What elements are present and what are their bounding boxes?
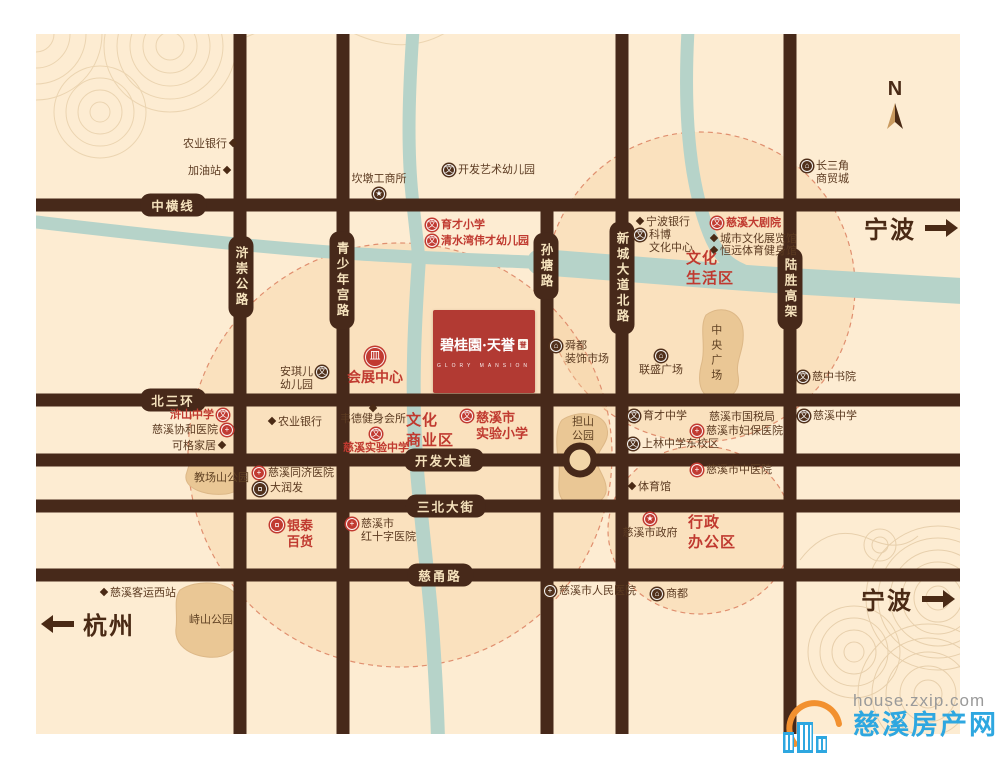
school-icon: 文 [711,217,723,229]
poi-hushan-middle-school: 浒山中学文 [170,409,229,422]
direction-label: 杭州 [83,606,135,641]
poi-label: 体育馆 [638,481,671,494]
district-label-culture-living-zone: 文化 生活区 [686,249,734,290]
hospital-icon: + [691,425,703,437]
compass: N [884,78,906,131]
poi-label: 慈溪同济医院 [268,467,334,480]
star-icon: ★ [644,513,656,525]
poi-changsanjiao-trade-city: ⌂长三角 商贸城 [801,160,849,186]
poi-cixi-experimental-primary-school: 文慈溪市 实验小学 [461,410,528,441]
pin-icon [628,482,636,490]
school-icon: 文 [798,410,810,422]
poi-shangdu-mall: ⌂商都 [651,588,688,601]
pin-icon [223,166,231,174]
poi-anqier-kindergarten: 安琪儿 幼儿园文 [280,366,328,392]
watermark-site-name: 慈溪房产网 [853,711,998,739]
poi-label: 慈溪客运西站 [110,587,176,600]
poi-cizhong-academy: 文慈中书院 [797,371,856,384]
poi-tcm-hospital: +慈溪市中医院 [691,464,772,477]
poi-qingshuiwan-kindergarten: 文清水湾伟才幼儿园 [426,235,529,248]
poi-cixi-middle-school: 文慈溪中学 [798,410,857,423]
poi-yintai-department-store: ¤银泰 百货 [270,518,313,549]
poi-shundu-decor-market: ⌂舜都 装饰市场 [550,340,609,366]
poi-yucai-primary-school: 文育才小学 [426,219,485,232]
school-icon: 文 [628,410,640,422]
road-label-huchong-highway: 浒崇公路 [229,236,254,318]
school-icon: 文 [370,428,382,440]
building-icon: ⌂ [655,350,667,362]
poi-tongji-hospital: +慈溪同济医院 [253,467,334,480]
pin-icon [100,588,108,596]
direction-label: 宁波 [861,581,913,616]
poi-label: 清水湾伟才幼儿园 [441,235,529,248]
poi-label: 慈溪中学 [813,410,857,423]
pin-icon [218,441,226,449]
pin-icon [636,217,644,225]
district-label-admin-office-zone: 行政 办公区 [688,513,736,554]
hospital-icon: + [346,518,358,530]
park-label-zhishan-park: 峙山公园 [189,614,233,628]
poi-label: 慈溪市国税局 [709,411,775,424]
park-label-danshan-park: 担山 公园 [564,416,602,444]
watermark: house.zxip.com 慈溪房产网 [779,692,998,756]
poi-kege-home: 可格家居 [172,440,225,453]
park-label-jiaochangshan-park: 教场山公园 [194,472,249,486]
project-subtitle: GLORY MANSION [437,363,531,369]
poi-weide-fitness-club: 韦德健身会所 [336,403,410,426]
poi-label: 舜都 装饰市场 [565,340,609,366]
poi-cixi-grand-theatre: 文慈溪大剧院 [711,217,781,230]
poi-label: 慈溪协和医院 [152,424,218,437]
poi-xiehe-hospital: 慈溪协和医院+ [152,424,233,437]
school-icon: 文 [217,409,229,421]
poi-label: 韦德健身会所 [340,413,406,426]
building-icon: ⌂ [550,340,562,352]
pin-icon [369,404,377,412]
school-icon: 文 [627,438,639,450]
poi-tax-bureau: 慈溪市国税局 [709,411,775,424]
poi-label: 加油站 [188,165,221,178]
road-label-qingshaoniangong-road: 青少年宫路 [330,231,355,329]
poi-gas-station: 加油站 [188,165,230,178]
park-label-zhongyang-plaza: 中央广场 [708,324,722,384]
poi-agri-bank-north: 农业银行 [183,138,236,151]
road-label-zhonghengxian: 中横线 [140,194,206,217]
school-icon: 文 [426,219,438,231]
star-icon: ★ [373,188,385,200]
poi-convention-center: 皿会展中心 [343,347,407,386]
road-label-ciyong-road: 慈甬路 [407,564,473,587]
poi-label: 上林中学东校区 [642,438,719,451]
direction-to-hangzhou: 杭州 [52,606,135,641]
poi-label: 育才小学 [441,219,485,232]
pin-icon [229,139,237,147]
direction-to-ningbo-north: 宁波 [864,210,947,245]
poi-label: 长三角 商贸城 [816,160,849,186]
direction-label: 宁波 [864,210,916,245]
project-seal: 誉 [518,339,528,350]
road-label-suntang-road: 孙塘路 [534,233,559,300]
poi-west-bus-station: 慈溪客运西站 [101,587,176,600]
school-icon: 文 [443,164,455,176]
district-label-culture-business-zone: 文化 商业区 [406,411,454,452]
poi-label: 商都 [666,588,688,601]
project-name: 碧桂園·天誉誉 [440,335,528,355]
poi-label: 农业银行 [278,416,322,429]
poi-label: 育才中学 [643,410,687,423]
poi-stadium: 体育馆 [629,481,671,494]
road-label-sanbei-street: 三北大街 [406,495,486,518]
arrow-right-icon [922,596,944,602]
project-logo-block: 碧桂園·天誉誉 GLORY MANSION [433,310,535,393]
poi-label: 慈溪市中医院 [706,464,772,477]
pin-icon [710,234,718,242]
poi-shanglin-middle-school-east: 文上林中学东校区 [627,438,719,451]
poi-darunfa-supermarket: ¤大润发 [253,482,303,496]
poi-label: 银泰 百货 [287,518,313,549]
poi-label: 慈溪大剧院 [726,217,781,230]
map: 碧桂園·天誉誉 GLORY MANSION N house.zxip.com [0,0,1000,768]
poi-label: 联盛广场 [639,364,683,377]
poi-label: 慈溪市 实验小学 [476,410,528,441]
poi-label: 大润发 [270,482,303,495]
poi-ningbo-bank: 宁波银行 [637,216,690,229]
poi-label: 慈溪市政府 [623,527,678,540]
compass-label: N [888,78,902,101]
poi-label: 会展中心 [347,369,403,386]
school-icon: 文 [461,410,473,422]
hospital-icon: + [221,424,233,436]
poi-label: 开发艺术幼儿园 [458,164,535,177]
arrow-right-icon [925,225,947,231]
poi-label: 安琪儿 幼儿园 [280,366,313,392]
pin-icon [268,417,276,425]
cart-icon: ¤ [270,518,284,532]
poi-label: 农业银行 [183,138,227,151]
watermark-url: house.zxip.com [853,692,998,711]
poi-label: 可格家居 [172,440,216,453]
poi-kebo-culture-center: 文科博 文化中心 [634,229,693,255]
poi-label: 慈溪市妇保医院 [706,425,783,438]
poi-label: 浒山中学 [170,409,214,422]
poi-kandun-industry-office: 坎墩工商所★ [341,173,417,200]
poi-kaifa-art-kindergarten: 文开发艺术幼儿园 [443,164,535,177]
poi-red-cross-hospital: +慈溪市 红十字医院 [346,518,416,544]
hospital-icon: + [544,585,556,597]
poi-yucai-middle-school: 文育才中学 [628,410,687,423]
poi-label: 慈中书院 [812,371,856,384]
poi-cixi-experimental-middle-school: 文慈溪实验中学 [339,428,413,455]
poi-label: 慈溪实验中学 [343,442,409,455]
hospital-icon: + [691,464,703,476]
site-logo-icon [779,692,849,756]
poi-label: 慈溪市 红十字医院 [361,518,416,544]
school-icon: 文 [426,235,438,247]
cart-icon: ¤ [253,482,267,496]
road-label-lusheng-viaduct: 陆胜高架 [778,248,803,330]
school-icon: 文 [316,366,328,378]
school-icon: 文 [634,229,646,241]
bank-icon: 皿 [365,347,385,367]
poi-fubao-hospital: +慈溪市妇保医院 [691,425,783,438]
poi-renmin-hospital: +慈溪市人民医院 [544,585,636,598]
poi-agri-bank-west: 农业银行 [269,416,322,429]
poi-label: 宁波银行 [646,216,690,229]
poi-city-government: ★慈溪市政府 [617,513,683,540]
school-icon: 文 [797,371,809,383]
road-label-xincheng-avenue-north: 新城大道北路 [610,222,635,335]
compass-arrow-icon [884,101,906,131]
poi-liansheng-plaza: ⌂联盛广场 [631,350,691,377]
building-icon: ⌂ [651,588,663,600]
map-overlay: 碧桂園·天誉誉 GLORY MANSION N house.zxip.com [0,0,1000,768]
arrow-left-icon [52,621,74,627]
building-icon: ⌂ [801,160,813,172]
road-label-kaifa-avenue: 开发大道 [404,449,484,472]
poi-label: 坎墩工商所 [352,173,407,186]
hospital-icon: + [253,467,265,479]
direction-to-ningbo-south: 宁波 [861,581,944,616]
poi-label: 慈溪市人民医院 [559,585,636,598]
